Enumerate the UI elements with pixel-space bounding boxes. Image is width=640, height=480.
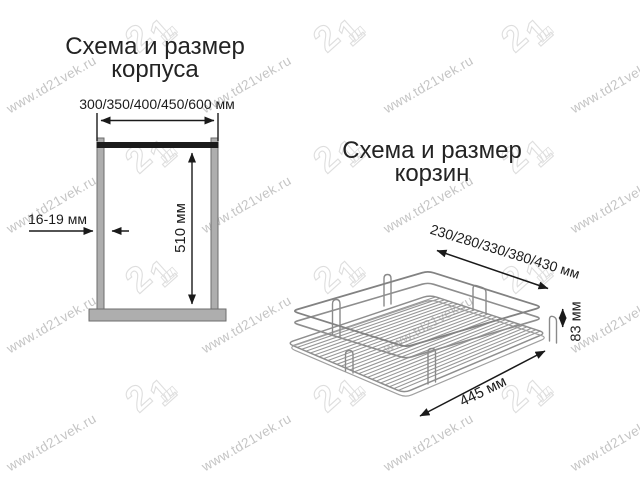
basket-title-line2: корзин [322,162,542,185]
cabinet-height-label: 510 мм [172,200,188,256]
basket-post [384,275,391,307]
basket-drawing [290,272,556,396]
cabinet-top-rail [97,142,219,148]
cabinet-dimension-lines [29,113,218,304]
cabinet-thickness-label: 16-19 мм [28,211,87,227]
cabinet-title-line2: корпуса [36,58,274,81]
cabinet-bottom-panel [89,309,226,321]
cabinet-title-line1: Схема и размер [36,35,274,58]
cabinet-width-label: 300/350/400/450/600 мм [64,96,250,112]
basket-title-line1: Схема и размер [322,139,542,162]
cabinet-wall-right [211,138,218,310]
basket-height-label: 83 мм [569,299,584,345]
basket-post [550,316,557,343]
basket-title: Схема и размер корзин [322,139,542,185]
basket-slat [324,307,467,359]
cabinet-wall-left [97,138,104,310]
page: www.td21vek.ruwww.td21vek.ruwww.td21vek.… [0,0,640,480]
cabinet-title: Схема и размер корпуса [36,35,274,81]
